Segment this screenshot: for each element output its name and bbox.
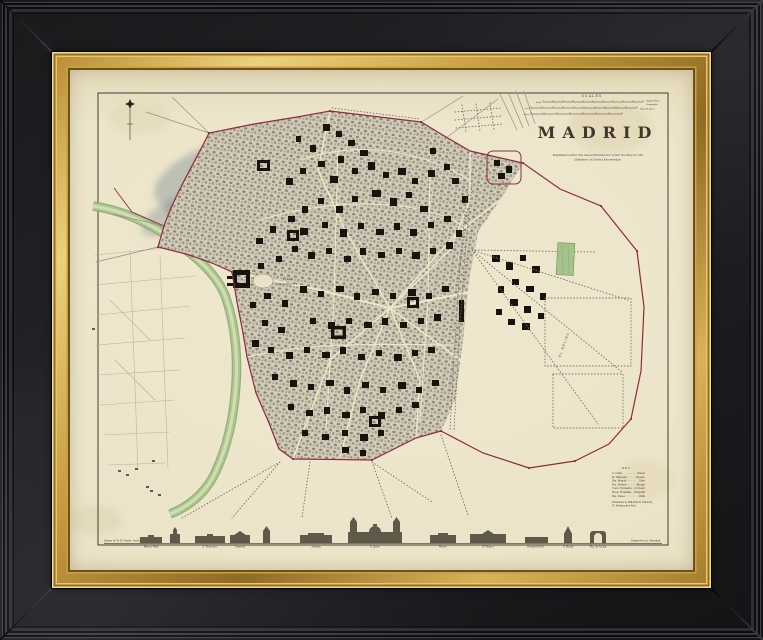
city-fabric <box>158 111 523 460</box>
skyline-building <box>590 531 606 543</box>
skyline-caption-1: Palacio Real <box>144 546 159 549</box>
key-row-abbr-2: Pl. Plazuela <box>612 476 627 479</box>
label-plaza-2: DE ORIENTE <box>278 283 298 286</box>
map-sheet: PLAZA DE ORIENTE EL RETIRO <box>70 70 693 570</box>
key-row-term-4: Bridge <box>636 483 645 486</box>
key-row-abbr-4: Pte. Puente <box>612 483 627 486</box>
imprint-line-2: Diffusion of Useful Knowledge. <box>573 158 621 162</box>
skyline-caption-7: Pl. Mayor <box>482 546 495 549</box>
skyline-building <box>230 531 250 543</box>
credit-left: Drawn by W. B. Clarke, Archt. <box>104 540 141 543</box>
key-row-term-1: Street <box>637 472 645 475</box>
key-row-term-3: Gate <box>639 480 645 483</box>
map-title: MADRID <box>538 123 659 142</box>
skyline-building <box>263 526 270 543</box>
scale-note-1: English Miles <box>646 101 660 103</box>
scale-bar-label-1: Yards <box>535 102 542 104</box>
scale-note-3: Geographic <box>646 104 659 106</box>
key-row-term-2: Square <box>636 476 646 479</box>
retiro-garden <box>556 243 575 276</box>
west-fields <box>92 247 195 496</box>
map-engraving: PLAZA DE ORIENTE EL RETIRO <box>70 70 693 570</box>
framed-madrid-map: PLAZA DE ORIENTE EL RETIRO <box>0 0 763 640</box>
credit-right: Engraved by J. Henshall. <box>631 540 661 543</box>
skyline-building <box>300 533 332 543</box>
skyline-building <box>470 530 506 543</box>
scale-note-2: Spanish Varas <box>640 109 654 111</box>
label-retiro: EL RETIRO <box>558 332 571 358</box>
key-row-term-5: Convent <box>634 487 645 490</box>
skyline-building <box>195 534 225 543</box>
key-row-term-6: Hospital <box>634 491 645 494</box>
skyline-building <box>564 526 572 543</box>
skyline-building <box>348 517 402 543</box>
skyline-caption-4: Aduana <box>310 546 321 549</box>
plaza-oriente-oval <box>253 274 273 288</box>
skyline-building <box>140 535 162 543</box>
skyline-caption-5: S. Isidro <box>370 546 381 549</box>
key-row-term-7: Walk <box>639 495 646 498</box>
skyline-caption-3: Armeria <box>234 546 245 549</box>
skyline-building <box>430 533 456 543</box>
skyline-caption-9: S. Maria <box>563 546 574 549</box>
skyline-caption-2: S. Francisco <box>203 546 219 549</box>
scale-bar-label-2: Feet <box>525 107 530 110</box>
skyline-building <box>170 527 180 543</box>
label-plaza: PLAZA <box>283 278 294 281</box>
skyline-caption-10: Pta. de Alcala <box>590 546 607 549</box>
skyline-caption-8: Hospital Genl. <box>527 546 545 549</box>
key-row-abbr-7: Pas. Paseo <box>612 495 626 498</box>
skyline-building <box>525 537 548 543</box>
key-title: KEY. <box>622 466 632 470</box>
key-row-abbr-1: C. Calle <box>612 472 622 475</box>
scales-title: SCALES <box>582 94 603 98</box>
skyline-caption-6: Museo <box>439 546 448 549</box>
key-row-abbr-5: Conv. Convento <box>612 487 632 490</box>
key-row-abbr-3: Pta. Puerta <box>612 480 627 483</box>
skyline-strip: Palacio Real S. Francisco Armeria Aduana… <box>104 517 662 549</box>
key-note-line-2: 47 Paternoster Row. <box>612 505 637 508</box>
scale-bar-label-3: Varas <box>523 114 530 116</box>
imprint-line-1: Published under the Superintendence of t… <box>552 153 644 157</box>
key-row-abbr-6: Hosp. Hospital <box>612 491 631 494</box>
